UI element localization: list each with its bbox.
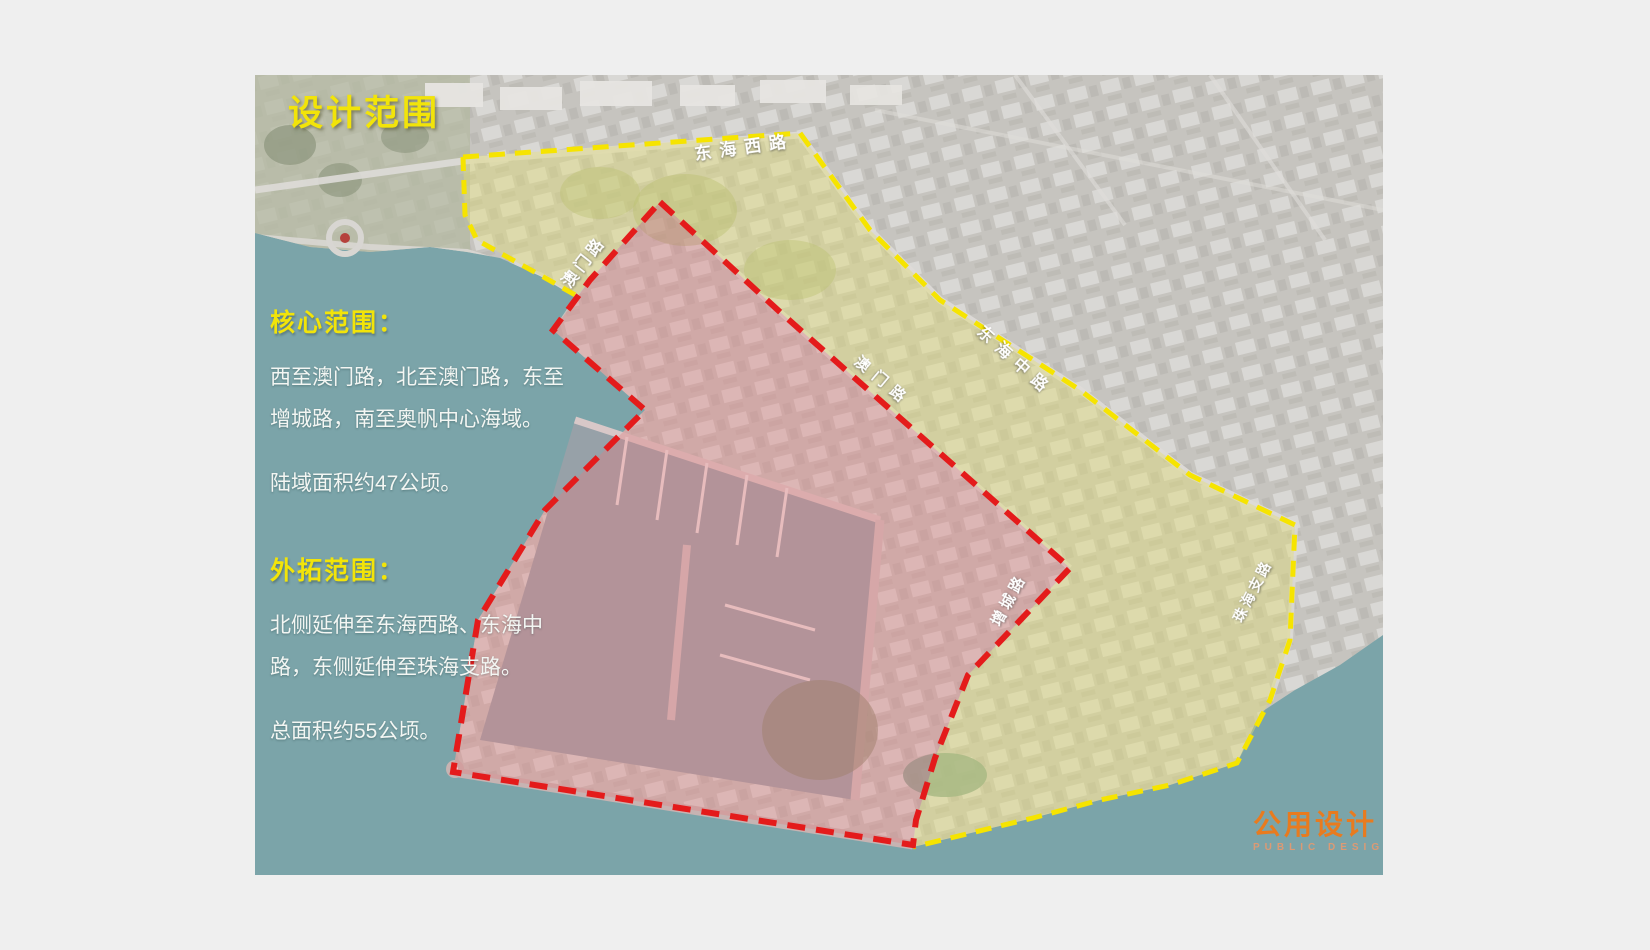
- building: [680, 85, 735, 106]
- core-scope-text-line: 增城路，南至奥帆中心海域。: [270, 399, 540, 441]
- building: [850, 85, 902, 105]
- design-scope-slide: 东海西路 澳门路 澳门路 东海中路 增城路 珠海支路 设计范围 核心范围： 西至…: [0, 0, 1650, 950]
- satellite-map: 东海西路 澳门路 澳门路 东海中路 增城路 珠海支路 设计范围 核心范围： 西至…: [255, 75, 1383, 875]
- extended-scope-heading: 外拓范围：: [270, 551, 540, 587]
- scope-description-panel: 核心范围： 西至澳门路，北至澳门路，东至 增城路，南至奥帆中心海域。 陆域面积约…: [270, 303, 540, 753]
- building: [500, 87, 562, 110]
- logo-english: PUBLIC DESIGN: [1253, 842, 1383, 853]
- core-scope-heading: 核心范围：: [270, 303, 540, 339]
- logo-chinese: 公用设计: [1253, 810, 1383, 840]
- extended-scope-area: 总面积约55公顷。: [270, 711, 540, 753]
- plaza-center: [340, 233, 350, 243]
- brand-logo: 公用设计 PUBLIC DESIGN: [1253, 810, 1383, 853]
- building: [580, 81, 652, 106]
- extended-scope-text-line: 北侧延伸至东海西路、东海中: [270, 605, 540, 647]
- core-scope-text-line: 西至澳门路，北至澳门路，东至: [270, 357, 540, 399]
- extended-scope-text-line: 路，东侧延伸至珠海支路。: [270, 647, 540, 689]
- page-title: 设计范围: [288, 85, 440, 136]
- building: [760, 80, 826, 103]
- core-scope-area: 陆域面积约47公顷。: [270, 463, 540, 505]
- section-gap: [270, 505, 540, 551]
